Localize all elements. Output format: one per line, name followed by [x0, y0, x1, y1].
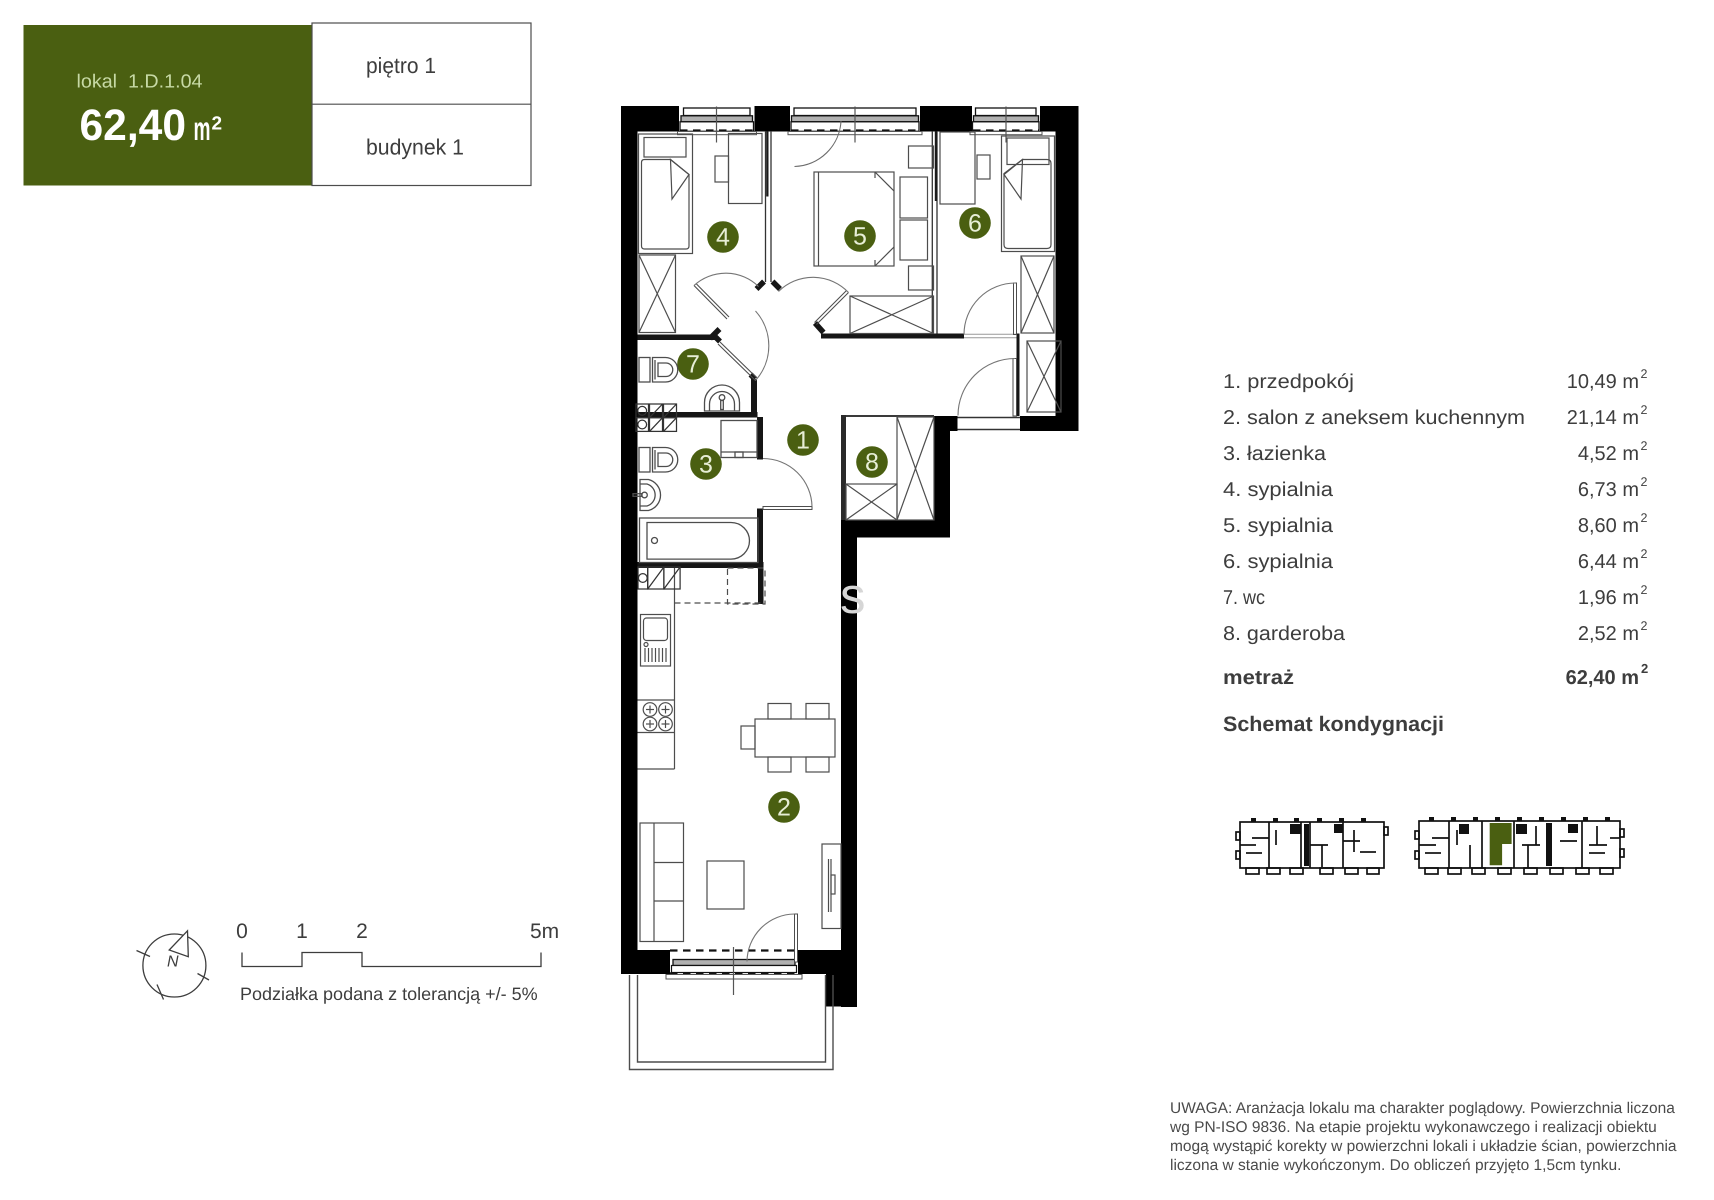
svg-text:s: s [840, 567, 866, 624]
svg-text:lokal 1.D.1.04: lokal 1.D.1.04 [77, 72, 203, 93]
svg-text:2: 2 [1641, 403, 1648, 417]
svg-text:wg PN-ISO 9836. Na etapie proj: wg PN-ISO 9836. Na etapie projektu wykon… [1169, 1119, 1657, 1136]
svg-text:UWAGA: Aranżacja lokalu ma cha: UWAGA: Aranżacja lokalu ma charakter pog… [1170, 1100, 1675, 1117]
svg-text:4. sypialnia: 4. sypialnia [1223, 479, 1334, 501]
svg-text:2: 2 [1641, 367, 1648, 381]
svg-text:1. przedpokój: 1. przedpokój [1223, 371, 1354, 393]
svg-text:3: 3 [699, 451, 713, 479]
svg-text:N: N [167, 954, 179, 971]
svg-text:2: 2 [1641, 583, 1648, 597]
svg-text:2: 2 [1641, 619, 1648, 633]
svg-text:2. salon z aneksem kuchennym: 2. salon z aneksem kuchennym [1223, 407, 1525, 429]
svg-text:6,73 m: 6,73 m [1578, 479, 1639, 501]
svg-text:62,40 m: 62,40 m [1566, 667, 1639, 689]
svg-text:m: m [194, 110, 211, 147]
svg-text:2: 2 [1641, 439, 1648, 453]
svg-text:4: 4 [716, 224, 730, 252]
svg-text:2: 2 [1641, 511, 1648, 525]
svg-text:7: 7 [686, 351, 700, 379]
svg-text:3. łazienka: 3. łazienka [1223, 443, 1327, 465]
svg-text:21,14 m: 21,14 m [1567, 407, 1639, 429]
svg-text:2: 2 [1641, 661, 1648, 676]
svg-text:1: 1 [296, 920, 308, 943]
svg-text:Podziałka podana z tolerancją: Podziałka podana z tolerancją +/- 5% [240, 984, 538, 1004]
svg-text:mogą wystąpić korekty w powier: mogą wystąpić korekty w powierzchni loka… [1170, 1138, 1677, 1155]
svg-text:piętro 1: piętro 1 [366, 53, 436, 78]
svg-text:2: 2 [777, 794, 791, 822]
svg-text:5m: 5m [530, 920, 559, 943]
svg-text:liczona w stanie wykończonym.: liczona w stanie wykończonym. Do oblicze… [1170, 1157, 1621, 1174]
svg-text:5: 5 [853, 223, 867, 251]
svg-text:budynek 1: budynek 1 [366, 135, 464, 160]
svg-text:1: 1 [796, 427, 810, 455]
svg-text:8,60 m: 8,60 m [1578, 515, 1639, 537]
svg-text:4,52 m: 4,52 m [1578, 443, 1639, 465]
svg-text:Schemat kondygnacji: Schemat kondygnacji [1223, 713, 1444, 736]
svg-text:2: 2 [1641, 475, 1648, 489]
svg-text:10,49 m: 10,49 m [1567, 371, 1639, 393]
svg-text:2: 2 [356, 920, 368, 943]
svg-text:2: 2 [1641, 547, 1648, 561]
svg-text:6,44 m: 6,44 m [1578, 551, 1639, 573]
svg-text:0: 0 [236, 920, 248, 943]
svg-text:8. garderoba: 8. garderoba [1223, 623, 1346, 645]
svg-text:2: 2 [212, 114, 223, 135]
svg-text:8: 8 [865, 449, 879, 477]
svg-text:1,96 m: 1,96 m [1578, 587, 1639, 609]
svg-text:5. sypialnia: 5. sypialnia [1223, 515, 1334, 537]
svg-text:2,52 m: 2,52 m [1578, 623, 1639, 645]
svg-text:6: 6 [968, 210, 982, 238]
svg-text:6. sypialnia: 6. sypialnia [1223, 551, 1334, 573]
svg-text:metraż: metraż [1223, 667, 1294, 689]
svg-text:7. wc: 7. wc [1223, 587, 1265, 609]
svg-text:62,40: 62,40 [80, 101, 187, 150]
